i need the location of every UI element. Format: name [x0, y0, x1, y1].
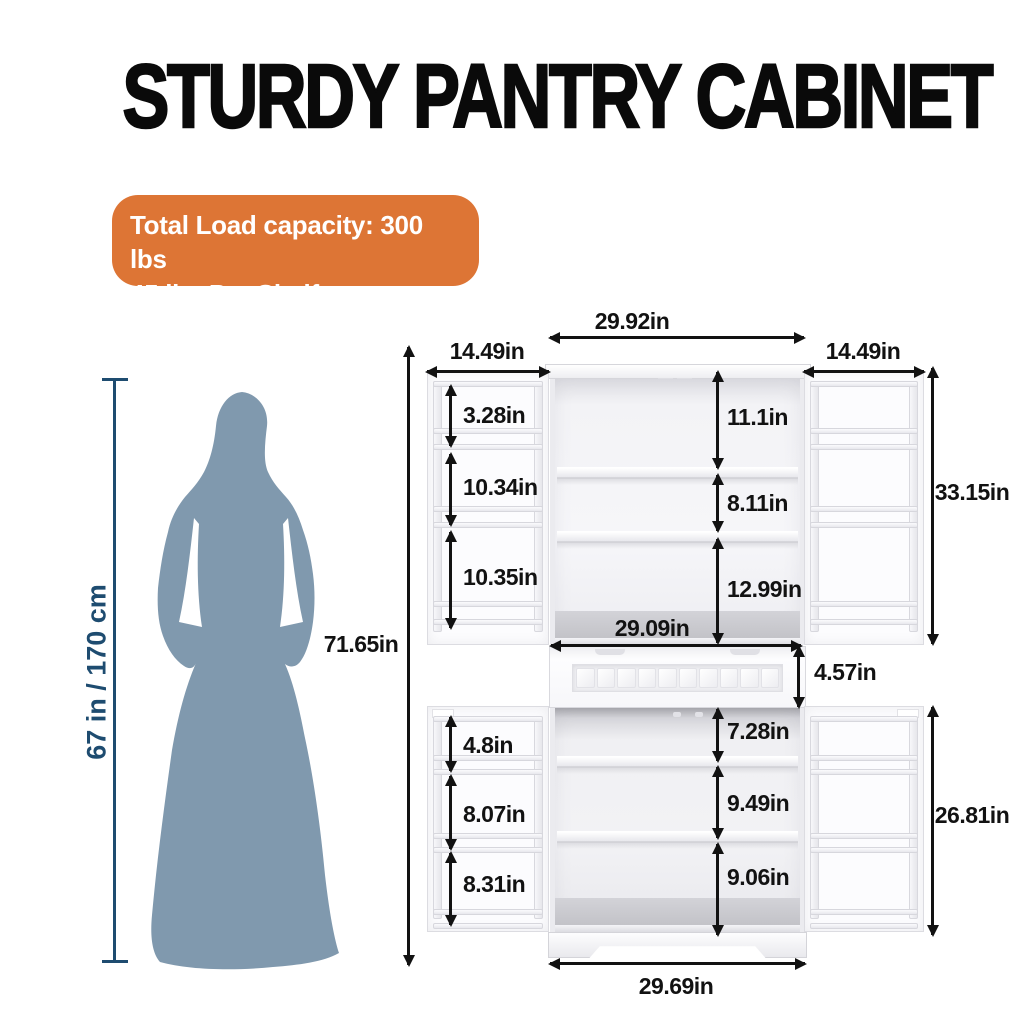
capacity-line-1: Total Load capacity: 300 lbs — [130, 208, 461, 277]
dim-label-base-width: 29.69in — [639, 975, 714, 998]
dim-line-overall-height — [407, 347, 410, 965]
cabinet-top-panel — [545, 364, 811, 379]
dim-label-right-door-width: 14.49in — [826, 340, 901, 363]
door-pocket-bar — [810, 428, 918, 434]
dim-label-upper-shelf-space-2: 8.11in — [727, 492, 788, 515]
dim-label-lower-section-height: 26.81in — [935, 804, 1010, 827]
door-pocket-bar — [810, 833, 918, 839]
door-rail-left — [810, 717, 819, 919]
door-pocket-bar — [810, 444, 918, 450]
pantry-cabinet-infographic: STURDY PANTRY CABINET Total Load capacit… — [0, 0, 1024, 1024]
dim-label-left-door-width: 14.49in — [450, 340, 525, 363]
dim-line-lower-door-pocket-2 — [449, 776, 452, 849]
dim-line-base-width — [550, 962, 805, 965]
cabinet-base-plinth — [548, 932, 807, 958]
dim-label-lower-door-pocket-2: 8.07in — [463, 803, 525, 826]
page-title: STURDY PANTRY CABINET — [0, 52, 1024, 142]
door-pocket-bar — [810, 923, 918, 929]
middle-drawer-section — [549, 646, 806, 708]
decorative-square — [576, 668, 595, 688]
door-rail-left — [433, 717, 442, 919]
dim-label-lower-shelf-space-1: 7.28in — [727, 720, 789, 743]
door-pocket-bar — [810, 522, 918, 528]
door-pocket-bar — [810, 506, 918, 512]
dim-line-left-door-width — [427, 370, 549, 373]
door-rail-right — [909, 717, 918, 919]
person-height-line — [113, 378, 116, 963]
door-top-bar — [810, 716, 918, 722]
dim-line-upper-shelf-space-3 — [716, 539, 719, 643]
dim-label-lower-shelf-space-2: 9.49in — [727, 792, 789, 815]
door-pocket-bar — [810, 601, 918, 607]
door-pocket-bar — [810, 909, 918, 915]
dim-label-upper-shelf-space-3: 12.99in — [727, 578, 802, 601]
dim-line-lower-shelf-space-3 — [716, 844, 719, 935]
upper-shelf-1 — [557, 467, 798, 479]
handle-slot-left — [595, 649, 625, 655]
dim-line-lower-shelf-space-2 — [716, 767, 719, 838]
dim-line-lower-shelf-space-1 — [716, 709, 719, 761]
page-title-text: STURDY PANTRY CABINET — [123, 52, 992, 142]
hook-dot-2 — [695, 712, 703, 717]
decorative-square — [617, 668, 636, 688]
upper-right-door — [804, 370, 924, 645]
dim-label-lower-shelf-space-3: 9.06in — [727, 866, 789, 889]
dim-label-lower-door-pocket-1: 4.8in — [463, 734, 513, 757]
dim-label-overall-height: 71.65in — [324, 633, 399, 656]
decorative-square — [740, 668, 759, 688]
dim-line-upper-section-height — [931, 368, 934, 644]
lower-shelf-1 — [557, 756, 798, 768]
person-silhouette — [137, 370, 347, 975]
dim-label-top-width: 29.92in — [595, 310, 670, 333]
decorative-square — [638, 668, 657, 688]
dim-line-upper-shelf-space-1 — [716, 372, 719, 468]
upper-shelf-2 — [557, 531, 798, 543]
capacity-line-2: 45 lbs Per Shelf — [130, 277, 461, 311]
capacity-badge: Total Load capacity: 300 lbs 45 lbs Per … — [112, 195, 479, 286]
dim-label-lower-door-pocket-3: 8.31in — [463, 873, 525, 896]
dim-line-middle-section-height — [797, 647, 800, 707]
dim-label-upper-door-pocket-3: 10.35in — [463, 566, 538, 589]
lower-shelf-2 — [557, 831, 798, 843]
dim-line-lower-door-pocket-3 — [449, 853, 452, 925]
decorative-square — [699, 668, 718, 688]
dim-label-upper-interior-width: 29.09in — [615, 617, 690, 640]
door-pocket-bar — [810, 769, 918, 775]
lower-interior-front-edge — [555, 925, 800, 932]
dim-line-lower-section-height — [931, 707, 934, 935]
dim-line-upper-shelf-space-2 — [716, 475, 719, 531]
door-rail-right — [534, 717, 543, 919]
dim-label-middle-section-height: 4.57in — [814, 661, 876, 684]
door-pocket-bar — [810, 755, 918, 761]
decorative-square — [720, 668, 739, 688]
dim-label-upper-shelf-space-1: 11.1in — [727, 406, 788, 429]
person-silhouette-shape — [151, 392, 339, 969]
decorative-square-strip — [572, 664, 783, 692]
door-pocket-bar — [810, 847, 918, 853]
dim-line-upper-interior-width — [551, 644, 801, 647]
decorative-square — [761, 668, 780, 688]
dim-line-right-door-width — [804, 370, 924, 373]
hook-dot-1 — [673, 712, 681, 717]
lower-right-door — [804, 706, 924, 932]
decorative-square — [679, 668, 698, 688]
dim-line-upper-door-pocket-2 — [449, 454, 452, 525]
door-top-bar — [810, 381, 918, 387]
dim-line-upper-door-pocket-3 — [449, 532, 452, 628]
decorative-square — [597, 668, 616, 688]
person-height-label: 67 in / 170 cm — [82, 584, 113, 760]
door-pocket-bar — [810, 619, 918, 625]
decorative-square — [658, 668, 677, 688]
dim-label-upper-door-pocket-2: 10.34in — [463, 476, 538, 499]
dim-line-upper-door-pocket-1 — [449, 386, 452, 446]
dim-label-upper-door-pocket-1: 3.28in — [463, 404, 525, 427]
dim-label-upper-section-height: 33.15in — [935, 481, 1010, 504]
dim-line-top-width — [550, 336, 804, 339]
handle-slot-right — [730, 649, 760, 655]
dim-line-lower-door-pocket-1 — [449, 717, 452, 771]
lower-interior-floor — [555, 898, 800, 926]
